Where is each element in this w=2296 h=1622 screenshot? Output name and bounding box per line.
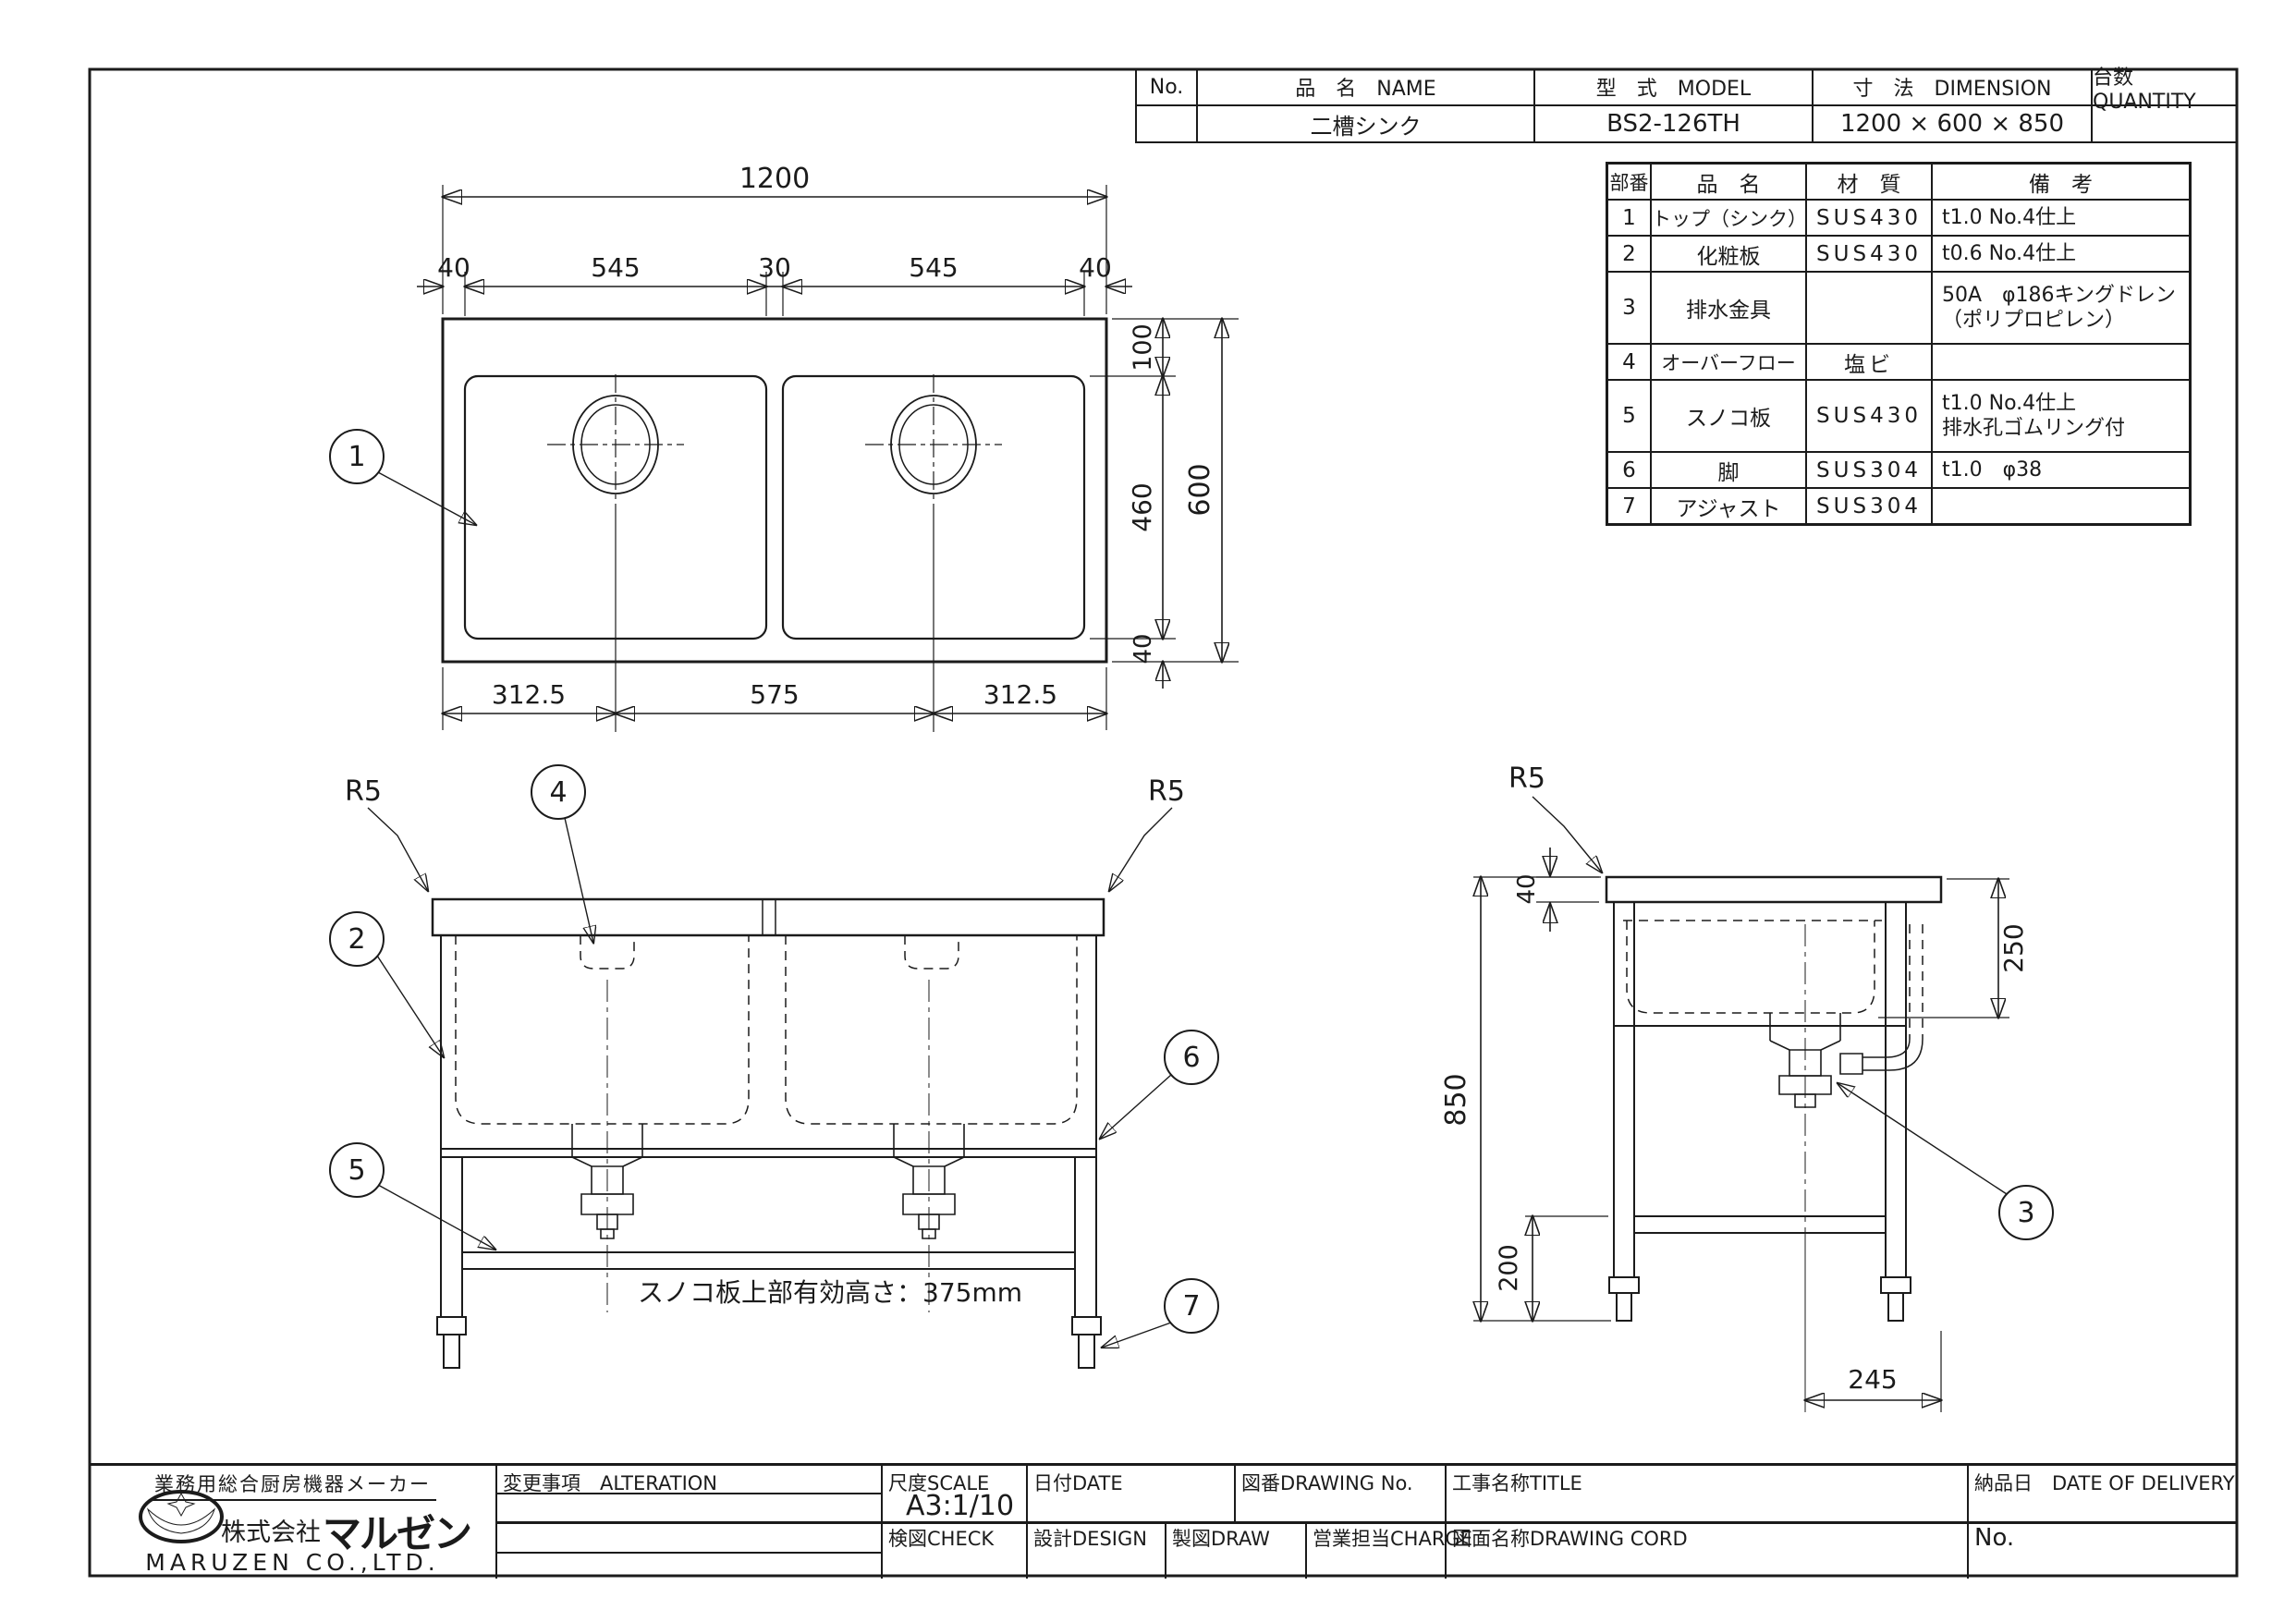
cell-ref: 1 (1608, 201, 1650, 235)
balloon-1: 1 (330, 430, 476, 525)
draw-label: 製図DRAW (1172, 1524, 1270, 1552)
foot-side-front (1617, 1293, 1631, 1321)
side-view-dimension-lines (1481, 848, 1998, 1400)
cell-remarks: t1.0 φ38 (1931, 453, 2189, 487)
cell-remarks (1931, 345, 2189, 379)
title-label: 工事名称TITLE (1452, 1469, 1582, 1496)
cell-material: SUS430 (1805, 381, 1931, 451)
adjuster-collar-left (437, 1317, 466, 1335)
logo-cell: 業務用総合厨房機器メーカー 株式会社 マルゼン MARUZEN CO.,LTD. (90, 1466, 495, 1579)
dim-100: 100 (1129, 323, 1157, 372)
overflow-hole-right (905, 935, 959, 969)
foot-left (444, 1335, 459, 1368)
cell-remarks (1931, 489, 2189, 523)
r5-label-right: R5 (1148, 775, 1185, 808)
title-block: 業務用総合厨房機器メーカー 株式会社 マルゼン MARUZEN CO.,LTD.… (90, 1463, 2237, 1576)
dim-545-right: 545 (909, 252, 958, 283)
foot-side-rear (1888, 1293, 1903, 1321)
cell-name: 排水金具 (1650, 273, 1805, 343)
balloon-5: 5 (330, 1143, 495, 1250)
balloon-4: 4 (531, 765, 593, 943)
overflow-hole-left (580, 935, 634, 969)
cell-name: トップ（シンク） (1650, 201, 1805, 235)
charge-label: 営業担当CHARGE (1313, 1524, 1472, 1552)
cell-remarks: 50A φ186キングドレン （ポリプロピレン） (1931, 273, 2189, 343)
r5-label-left: R5 (345, 775, 382, 808)
svg-text:2: 2 (348, 923, 365, 956)
header-table-head-row: No. 品 名 NAME 型 式 MODEL 寸 法 DIMENSION 台数 … (1135, 69, 2237, 106)
parts-head-row: 部番 品 名 材 質 備 考 (1608, 165, 2189, 199)
alteration-label: 変更事項 ALTERATION (503, 1469, 717, 1496)
dim-40-right: 40 (1079, 252, 1112, 283)
cell-material: SUS430 (1805, 237, 1931, 271)
drawing-name-label: 図面名称DRAWING CORD (1452, 1524, 1688, 1552)
cell-name: アジャスト (1650, 489, 1805, 523)
company-tagline: 業務用総合厨房機器メーカー (149, 1470, 436, 1501)
drain-elbow (1840, 1054, 1862, 1074)
parts-row-3: 3 排水金具 50A φ186キングドレン （ポリプロピレン） (1608, 271, 2189, 343)
dim-40-side: 40 (1513, 873, 1541, 904)
cell-remarks: t1.0 No.4仕上 (1931, 201, 2189, 235)
dim-250: 250 (1998, 923, 2029, 972)
check-label: 検図CHECK (888, 1524, 994, 1552)
cell-material (1805, 273, 1931, 343)
dim-1200: 1200 (739, 163, 810, 195)
cell-model: BS2-126TH (1533, 106, 1812, 143)
parts-header-material: 材 質 (1805, 165, 1931, 199)
cell-no (1135, 106, 1196, 143)
header-table-data-row: 二槽シンク BS2-126TH 1200 × 600 × 850 (1135, 106, 2237, 143)
header-no: No. (1135, 69, 1196, 106)
parts-row-5: 5 スノコ板 SUS430 t1.0 No.4仕上 排水孔ゴムリング付 (1608, 379, 2189, 451)
dim-850: 850 (1440, 1073, 1472, 1126)
cell-material: SUS304 (1805, 489, 1931, 523)
cell-name: 二槽シンク (1196, 106, 1533, 143)
parts-header-ref: 部番 (1608, 165, 1650, 199)
cell-name: オーバーフロー (1650, 345, 1805, 379)
cell-quantity (2091, 106, 2237, 143)
front-view: R5 R5 2 4 6 5 7 スノコ板上部有効高さ：375m (330, 765, 1218, 1368)
dim-575: 575 (750, 679, 799, 710)
parts-header-remarks: 備 考 (1931, 165, 2189, 199)
side-view-extension-lines (1473, 877, 2009, 1412)
hidden-bowl-side (1623, 921, 1923, 1039)
balloon-6: 6 (1100, 1031, 1218, 1139)
dim-600: 600 (1184, 463, 1216, 516)
svg-text:5: 5 (348, 1154, 365, 1187)
date-label: 日付DATE (1033, 1469, 1123, 1496)
cell-name: スノコ板 (1650, 381, 1805, 451)
hidden-bowl-outlines (456, 935, 1077, 1124)
svg-text:4: 4 (549, 776, 567, 809)
parts-row-1: 1 トップ（シンク） SUS430 t1.0 No.4仕上 (1608, 199, 2189, 235)
balloon-2: 2 (330, 912, 444, 1057)
cell-material: SUS430 (1805, 201, 1931, 235)
header-dimension: 寸 法 DIMENSION (1812, 69, 2091, 106)
dim-545-left: 545 (591, 252, 640, 283)
company-logotype: マルゼン (323, 1503, 470, 1559)
svg-text:7: 7 (1182, 1290, 1200, 1323)
top-view-extension-lines (443, 185, 1239, 730)
balloon-7: 7 (1102, 1279, 1218, 1348)
drain-side (1770, 1013, 1923, 1107)
top-view: 1200 40 545 30 545 40 100 460 40 600 312… (330, 163, 1239, 732)
dim-312-5-right: 312.5 (983, 679, 1057, 710)
cell-name: 脚 (1650, 453, 1805, 487)
parts-row-4: 4 オーバーフロー 塩ビ (1608, 343, 2189, 379)
dim-460: 460 (1127, 482, 1157, 531)
cell-material: SUS304 (1805, 453, 1931, 487)
company-prefix: 株式会社 (221, 1512, 321, 1548)
slat-height-note: スノコ板上部有効高さ：375mm (638, 1277, 1022, 1308)
foot-right (1079, 1335, 1094, 1368)
no-label: No. (1974, 1524, 2014, 1552)
cell-remarks: t1.0 No.4仕上 排水孔ゴムリング付 (1931, 381, 2189, 451)
header-table: No. 品 名 NAME 型 式 MODEL 寸 法 DIMENSION 台数 … (1135, 69, 2237, 143)
parts-row-2: 2 化粧板 SUS430 t0.6 No.4仕上 (1608, 235, 2189, 271)
header-name: 品 名 NAME (1196, 69, 1533, 106)
cell-name: 化粧板 (1650, 237, 1805, 271)
cell-ref: 2 (1608, 237, 1650, 271)
scale-value: A3:1/10 (894, 1490, 1026, 1522)
dim-30: 30 (758, 252, 791, 283)
header-quantity: 台数 QUANTITY (2091, 69, 2237, 106)
svg-text:3: 3 (2017, 1197, 2034, 1229)
cell-ref: 7 (1608, 489, 1650, 523)
cell-ref: 6 (1608, 453, 1650, 487)
adjuster-collar-right (1072, 1317, 1101, 1335)
cell-ref: 3 (1608, 273, 1650, 343)
cell-material: 塩ビ (1805, 345, 1931, 379)
svg-text:1: 1 (348, 441, 365, 473)
drawing-sheet: 1200 40 545 30 545 40 100 460 40 600 312… (0, 0, 2296, 1622)
dim-245: 245 (1848, 1364, 1897, 1395)
dim-40-front: 40 (1130, 633, 1157, 664)
delivery-label: 納品日 DATE OF DELIVERY (1974, 1469, 2235, 1496)
cell-ref: 5 (1608, 381, 1650, 451)
parts-row-7: 7 アジャスト SUS304 (1608, 487, 2189, 523)
parts-table: 部番 品 名 材 質 備 考 1 トップ（シンク） SUS430 t1.0 No… (1606, 162, 2192, 526)
dim-40-left: 40 (437, 252, 470, 283)
r5-label-side: R5 (1508, 762, 1545, 795)
cell-dimension: 1200 × 600 × 850 (1812, 106, 2091, 143)
dim-200: 200 (1495, 1244, 1523, 1292)
parts-row-6: 6 脚 SUS304 t1.0 φ38 (1608, 451, 2189, 487)
cell-ref: 4 (1608, 345, 1650, 379)
svg-text:6: 6 (1182, 1042, 1200, 1074)
cell-remarks: t0.6 No.4仕上 (1931, 237, 2189, 271)
parts-header-name: 品 名 (1650, 165, 1805, 199)
header-model: 型 式 MODEL (1533, 69, 1812, 106)
drawing-no-label: 図番DRAWING No. (1241, 1469, 1413, 1496)
design-label: 設計DESIGN (1033, 1524, 1147, 1552)
dim-312-5-left: 312.5 (492, 679, 566, 710)
side-view: R5 40 850 200 250 245 3 (1440, 762, 2053, 1412)
